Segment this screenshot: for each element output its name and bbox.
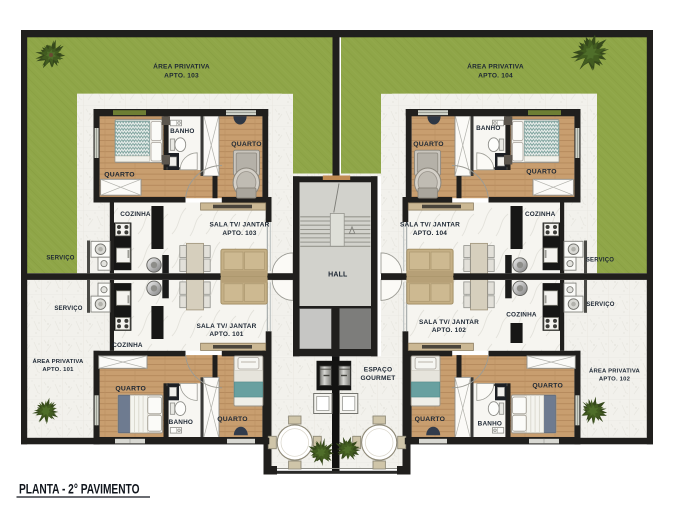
svg-text:ÁREA PRIVATIVA: ÁREA PRIVATIVA: [467, 61, 524, 70]
svg-text:APTO. 101: APTO. 101: [209, 331, 243, 338]
svg-text:ÁREA PRIVATIVA: ÁREA PRIVATIVA: [153, 61, 210, 70]
svg-text:SALA TV/ JANTAR: SALA TV/ JANTAR: [196, 323, 256, 330]
svg-text:QUARTO: QUARTO: [415, 416, 446, 423]
svg-text:ÁREA PRIVATIVA: ÁREA PRIVATIVA: [589, 368, 641, 375]
svg-text:BANHO: BANHO: [169, 419, 193, 426]
svg-text:ÁREA PRIVATIVA: ÁREA PRIVATIVA: [32, 358, 84, 365]
svg-text:APTO. 102: APTO. 102: [599, 376, 631, 382]
svg-text:SERVIÇO: SERVIÇO: [46, 255, 74, 261]
svg-text:QUARTO: QUARTO: [532, 382, 563, 389]
svg-text:QUARTO: QUARTO: [115, 385, 146, 392]
svg-text:APTO. 102: APTO. 102: [432, 327, 466, 334]
svg-text:QUARTO: QUARTO: [104, 172, 135, 179]
svg-text:BANHO: BANHO: [170, 128, 194, 135]
svg-text:COZINHA: COZINHA: [112, 342, 143, 349]
svg-text:GOURMET: GOURMET: [360, 375, 395, 382]
svg-text:SALA TV/ JANTAR: SALA TV/ JANTAR: [209, 221, 269, 228]
svg-text:APTO. 104: APTO. 104: [413, 230, 447, 237]
svg-text:BANHO: BANHO: [476, 125, 500, 132]
svg-text:APTO. 101: APTO. 101: [42, 367, 74, 373]
svg-text:SERVIÇO: SERVIÇO: [586, 257, 614, 263]
svg-text:COZINHA: COZINHA: [525, 211, 556, 218]
svg-text:PLANTA - 2° PAVIMENTO: PLANTA - 2° PAVIMENTO: [19, 482, 140, 497]
svg-text:BANHO: BANHO: [478, 420, 502, 427]
svg-text:SERVIÇO: SERVIÇO: [54, 306, 82, 312]
svg-text:ESPAÇO: ESPAÇO: [364, 366, 393, 373]
svg-text:APTO. 103: APTO. 103: [222, 230, 256, 237]
svg-text:COZINHA: COZINHA: [120, 211, 151, 218]
svg-text:APTO. 103: APTO. 103: [164, 73, 199, 80]
svg-text:SALA TV/ JANTAR: SALA TV/ JANTAR: [400, 221, 460, 228]
svg-text:QUARTO: QUARTO: [413, 141, 444, 148]
svg-text:QUARTO: QUARTO: [526, 168, 557, 175]
svg-text:SERVIÇO: SERVIÇO: [586, 302, 614, 308]
svg-text:HALL: HALL: [328, 272, 348, 279]
svg-text:QUARTO: QUARTO: [217, 416, 248, 423]
svg-text:APTO. 104: APTO. 104: [478, 73, 513, 80]
svg-text:QUARTO: QUARTO: [231, 141, 262, 148]
svg-text:SALA TV/ JANTAR: SALA TV/ JANTAR: [419, 319, 479, 326]
svg-text:COZINHA: COZINHA: [506, 311, 537, 318]
